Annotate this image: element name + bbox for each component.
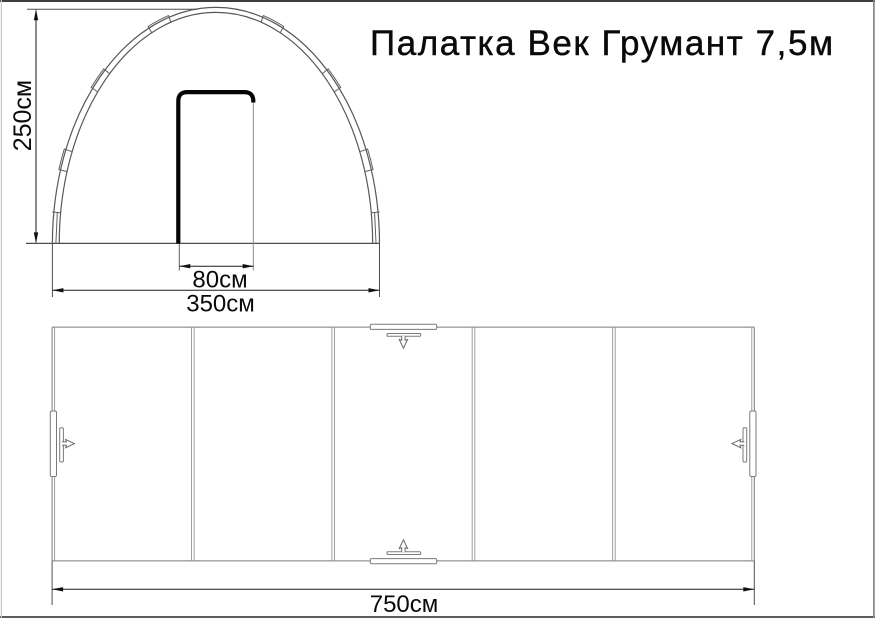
svg-text:Палатка Век Грумант 7,5м: Палатка Век Грумант 7,5м (370, 24, 835, 63)
svg-text:750см: 750см (370, 591, 439, 618)
svg-text:350см: 350см (186, 290, 255, 317)
svg-text:250см: 250см (9, 80, 37, 151)
